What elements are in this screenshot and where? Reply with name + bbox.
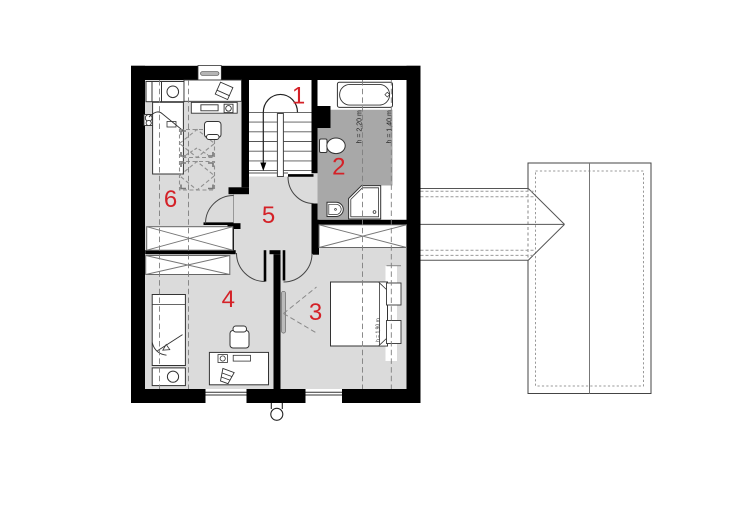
svg-text:6: 6 xyxy=(164,186,177,213)
svg-text:3: 3 xyxy=(309,299,322,326)
svg-text:1: 1 xyxy=(292,83,305,110)
svg-text:2: 2 xyxy=(332,154,345,181)
svg-text:h = 1,90 m: h = 1,90 m xyxy=(376,318,382,342)
svg-text:4: 4 xyxy=(222,286,235,313)
svg-text:5: 5 xyxy=(262,202,275,229)
svg-text:h = 1,40 m: h = 1,40 m xyxy=(386,110,393,143)
